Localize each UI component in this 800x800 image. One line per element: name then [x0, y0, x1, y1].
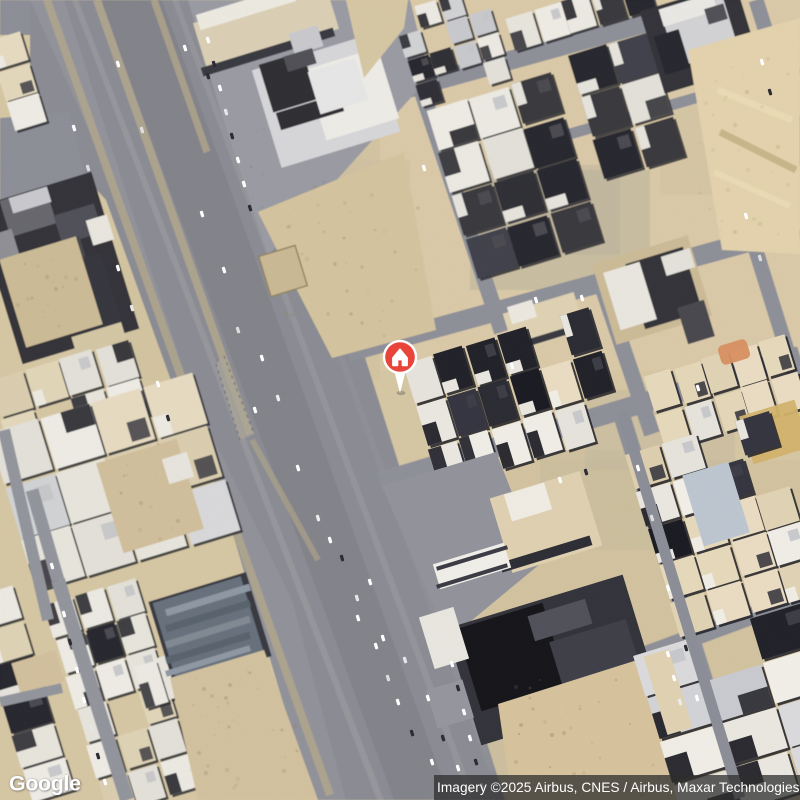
svg-text:Imagery ©2025 Airbus, CNES / A: Imagery ©2025 Airbus, CNES / Airbus, Max…: [437, 780, 800, 795]
svg-text:Google: Google: [9, 772, 81, 796]
